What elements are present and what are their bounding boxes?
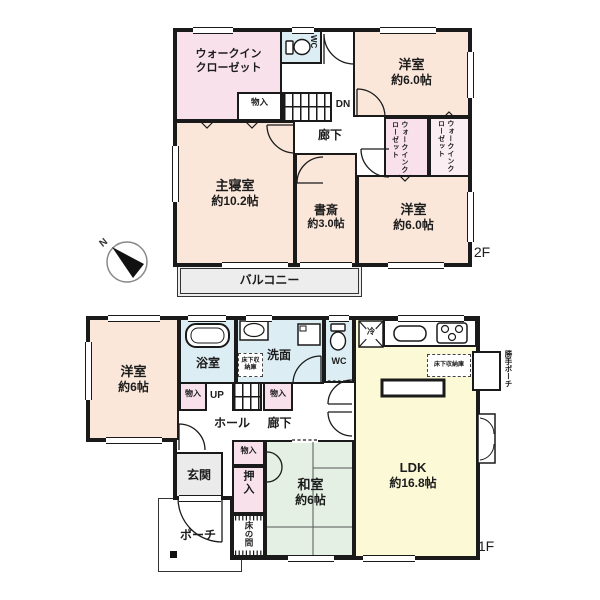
walkin-closet-label: ウォークイン クローゼット xyxy=(175,48,282,76)
hall-text: ホール xyxy=(214,416,250,431)
ldk-size: 約16.8帖 xyxy=(389,476,436,491)
stairs-2f-down xyxy=(282,92,332,122)
washroom-text: 洗面 xyxy=(267,348,291,363)
floor-plan: 床下収納庫 床下収納庫 xyxy=(0,0,600,600)
window xyxy=(467,192,474,242)
bedroom-se-size: 約6.0帖 xyxy=(393,218,434,233)
wc-1f-label: WC xyxy=(324,356,354,367)
floor-label-1f: 1F xyxy=(470,538,502,556)
storage-a-label: 物入 xyxy=(179,389,207,399)
balcony-label: バルコニー xyxy=(177,273,362,288)
up-text: UP xyxy=(210,390,224,403)
washitsu-name: 和室 xyxy=(297,477,323,493)
bedroom-se-name: 洋室 xyxy=(400,202,426,218)
bedroom-1f-size: 約6帖 xyxy=(118,380,149,395)
window xyxy=(246,315,272,322)
bedroom-1f-label: 洋室 約6帖 xyxy=(88,364,179,395)
window xyxy=(388,262,444,269)
window xyxy=(188,315,226,322)
window xyxy=(398,315,464,322)
washitsu-size: 約6帖 xyxy=(295,493,326,508)
storage-c-label: 物入 xyxy=(232,446,265,456)
window xyxy=(380,27,436,34)
window xyxy=(467,52,474,98)
storage-c-text: 物入 xyxy=(241,446,257,456)
window xyxy=(172,146,179,202)
window xyxy=(300,262,352,269)
entrance-label: 玄関 xyxy=(175,468,223,483)
bath-label: 浴室 xyxy=(180,356,236,371)
underfloor-storage-kitchen-label: 床下収納庫 xyxy=(434,362,464,369)
storage-2f-label: 物入 xyxy=(237,97,282,108)
stairs-up-label: UP xyxy=(204,390,230,403)
storage-2f-text: 物入 xyxy=(251,97,268,108)
washitsu-label: 和室 約6帖 xyxy=(267,477,354,508)
washroom-label: 洗面 xyxy=(248,348,310,363)
corridor-2f-label: 廊下 xyxy=(305,128,355,143)
compass-north-label: N xyxy=(97,236,110,249)
corridor-2f-text: 廊下 xyxy=(318,128,342,143)
wic-a-label: ウォークインクローゼット xyxy=(390,121,409,174)
entrance-sliding-door xyxy=(179,495,221,502)
master-bedroom-size: 約10.2帖 xyxy=(211,194,258,209)
window xyxy=(106,437,162,444)
corridor-1f-text: 廊下 xyxy=(267,416,291,431)
entrance-text: 玄関 xyxy=(187,468,211,483)
dn-text: DN xyxy=(336,99,350,112)
study-label: 書斎 約3.0帖 xyxy=(295,203,357,232)
study-size: 約3.0帖 xyxy=(307,218,344,232)
floor-label-2f: 2F xyxy=(466,244,498,262)
porch-label: ポーチ xyxy=(158,528,238,543)
underfloor-storage-kitchen: 床下収納庫 xyxy=(427,354,471,377)
ldk-label: LDK 約16.8帖 xyxy=(363,460,463,491)
walkin-closet-line2: クローゼット xyxy=(196,62,262,76)
bedroom-1f-name: 洋室 xyxy=(120,364,146,380)
window xyxy=(288,555,334,562)
tokonoma-label: 床の間 xyxy=(243,521,255,553)
porch-text: ポーチ xyxy=(180,528,216,543)
window xyxy=(329,315,349,322)
corridor-1f-label: 廊下 xyxy=(257,416,302,431)
bay-window xyxy=(478,414,495,463)
window xyxy=(108,315,160,322)
storage-b-text: 物入 xyxy=(270,389,286,399)
ldk-name: LDK xyxy=(400,460,427,476)
master-bedroom-label: 主寝室 約10.2帖 xyxy=(175,178,295,209)
bedroom-ne-name: 洋室 xyxy=(398,57,424,73)
bedroom-ne-size: 約6.0帖 xyxy=(391,73,432,88)
refrigerator-label: 冷 xyxy=(364,327,378,337)
window xyxy=(292,27,314,34)
window xyxy=(193,27,233,34)
storage-a-text: 物入 xyxy=(185,389,201,399)
window xyxy=(85,342,92,400)
bedroom-se-label: 洋室 約6.0帖 xyxy=(357,202,470,233)
room-1f-bath xyxy=(179,318,236,384)
side-porch-label: 勝手ポーチ xyxy=(503,350,514,396)
window xyxy=(222,262,288,269)
bedroom-ne-label: 洋室 約6.0帖 xyxy=(353,57,470,88)
wic-b-label: ウォークインクローゼット xyxy=(436,120,455,175)
storage-b-label: 物入 xyxy=(263,389,293,399)
hall-label: ホール xyxy=(203,416,261,431)
walkin-closet-line1: ウォークイン xyxy=(196,48,262,62)
oshiire-label: 押入 xyxy=(240,470,256,510)
room-1f-wc xyxy=(324,318,354,383)
wc-2f-label: WC xyxy=(309,35,318,61)
bath-text: 浴室 xyxy=(196,356,220,371)
refrigerator-text: 冷 xyxy=(367,327,375,337)
wc-1f-text: WC xyxy=(332,356,347,367)
stairs-1f-up xyxy=(232,382,262,411)
master-bedroom-name: 主寝室 xyxy=(215,178,254,194)
study-name: 書斎 xyxy=(314,203,338,218)
floor-1f-text: 1F xyxy=(478,538,494,556)
compass-icon: N xyxy=(97,236,147,282)
window xyxy=(363,555,415,562)
balcony-text: バルコニー xyxy=(240,273,300,288)
floor-2f-text: 2F xyxy=(474,244,490,262)
stairs-dn-label: DN xyxy=(330,99,356,112)
